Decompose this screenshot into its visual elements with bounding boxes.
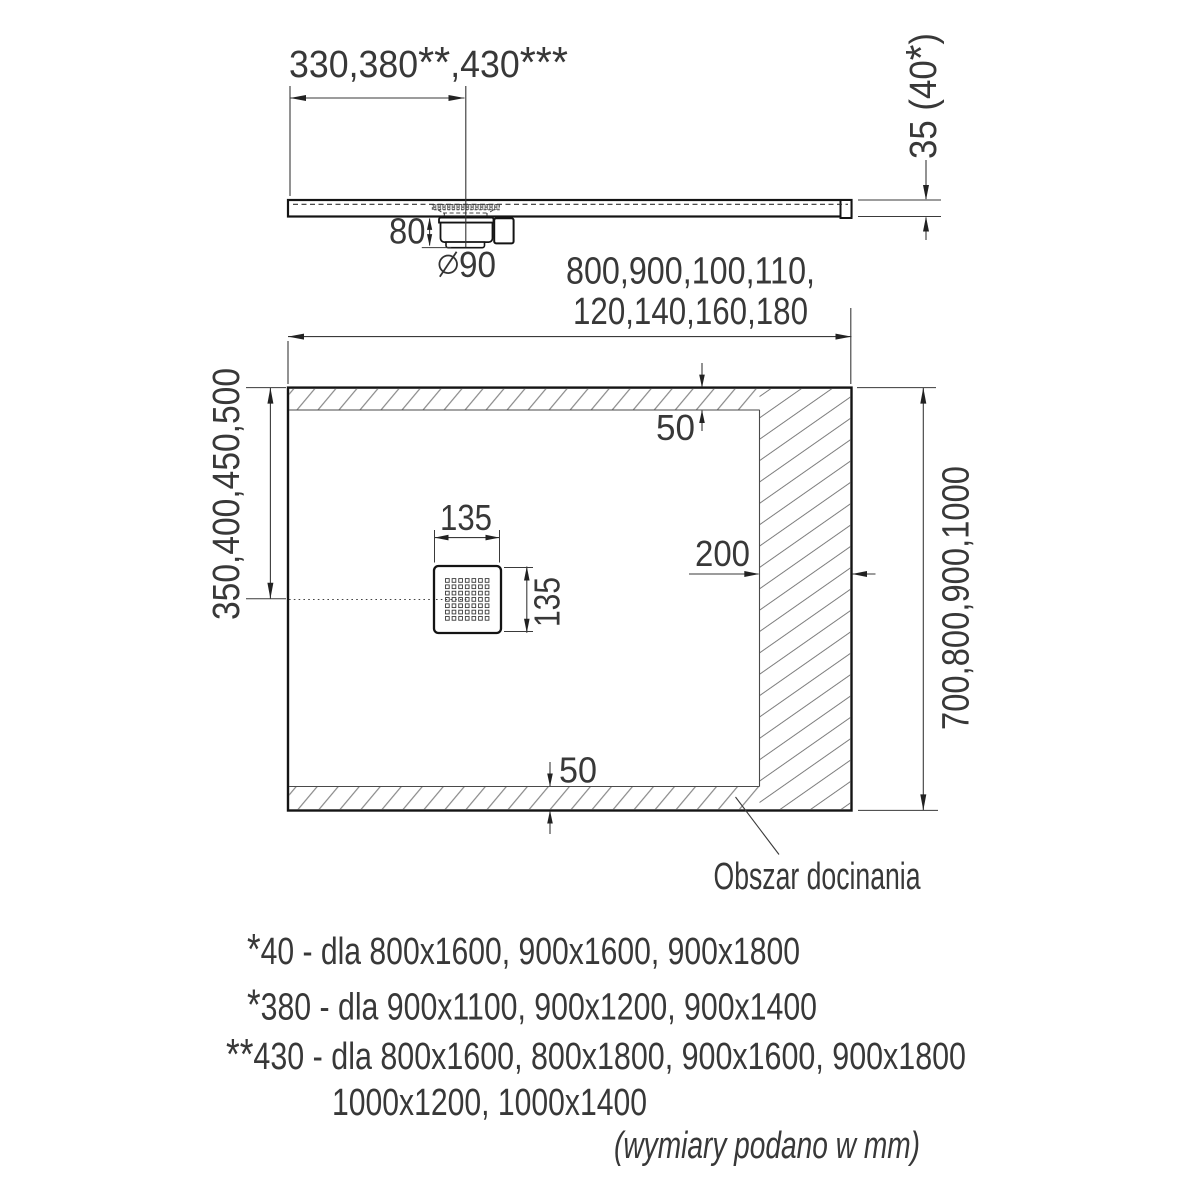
svg-text:135: 135 [440, 497, 492, 538]
svg-text:330,380**,430***: 330,380**,430*** [289, 38, 568, 87]
svg-text:200: 200 [695, 533, 750, 574]
svg-text:*380 - dla 900x1100, 900x1200,: *380 - dla 900x1100, 900x1200, 900x1400 [247, 981, 817, 1030]
svg-text:(wymiary podano w mm): (wymiary podano w mm) [614, 1125, 920, 1167]
svg-text:135: 135 [527, 577, 568, 627]
svg-text:Obszar docinania: Obszar docinania [714, 856, 922, 898]
svg-text:800,900,100,110,: 800,900,100,110, [566, 251, 815, 293]
svg-text:50: 50 [559, 750, 597, 791]
svg-text:*40 - dla 800x1600, 900x1600,: *40 - dla 800x1600, 900x1600, 900x1800 [247, 925, 800, 974]
svg-text:350,400,450,500: 350,400,450,500 [206, 368, 248, 620]
svg-text:90: 90 [459, 244, 496, 285]
svg-text:35 (40*): 35 (40*) [897, 33, 946, 159]
svg-text:**430 - dla 800x1600, 800x1800: **430 - dla 800x1600, 800x1800, 900x1600… [226, 1030, 966, 1079]
svg-text:700,800,900,1000: 700,800,900,1000 [936, 466, 978, 730]
svg-text:120,140,160,180: 120,140,160,180 [573, 291, 808, 333]
svg-text:50: 50 [656, 407, 695, 448]
svg-text:1000x1200, 1000x1400: 1000x1200, 1000x1400 [332, 1082, 647, 1124]
svg-text:80: 80 [389, 211, 426, 252]
